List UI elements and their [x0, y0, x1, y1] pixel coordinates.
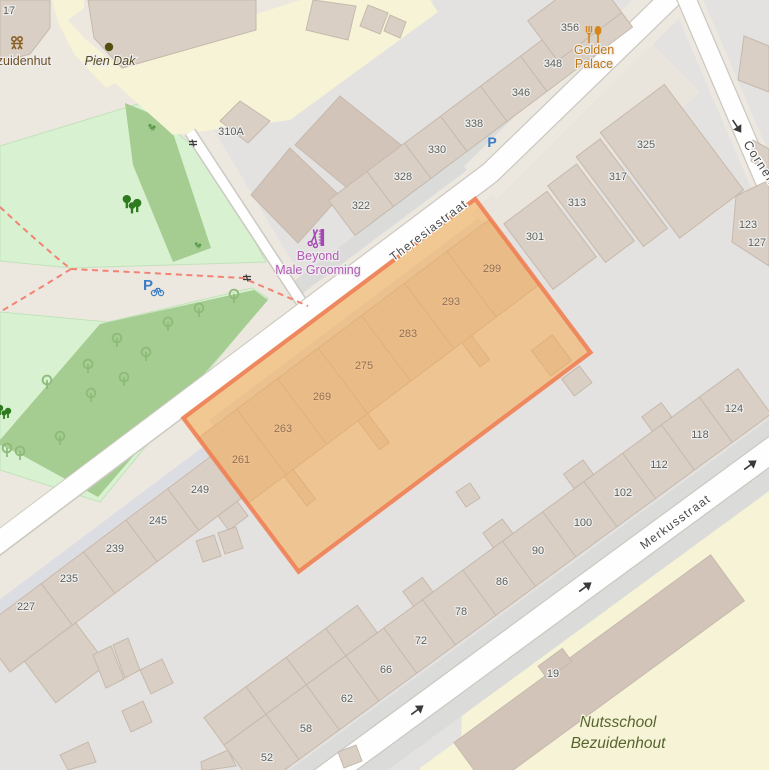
svg-text:118: 118	[691, 429, 709, 441]
svg-text:245: 245	[149, 515, 167, 527]
svg-text:19: 19	[547, 668, 559, 680]
svg-text:293: 293	[442, 296, 460, 308]
svg-text:310A: 310A	[218, 126, 244, 138]
svg-text:239: 239	[106, 543, 124, 555]
svg-text:Beyond: Beyond	[297, 249, 339, 263]
svg-text:72: 72	[415, 635, 427, 647]
svg-text:90: 90	[532, 545, 544, 557]
svg-text:328: 328	[394, 171, 412, 183]
svg-text:Male Grooming: Male Grooming	[275, 263, 360, 277]
svg-text:66: 66	[380, 664, 392, 676]
svg-text:102: 102	[614, 487, 632, 499]
svg-text:301: 301	[526, 231, 544, 243]
svg-text:86: 86	[496, 576, 508, 588]
svg-text:Bezuidenhut: Bezuidenhut	[0, 54, 52, 68]
svg-text:356: 356	[561, 22, 579, 34]
svg-text:249: 249	[191, 484, 209, 496]
svg-text:100: 100	[574, 517, 592, 529]
svg-text:317: 317	[609, 171, 627, 183]
svg-text:124: 124	[725, 403, 743, 415]
svg-text:313: 313	[568, 197, 586, 209]
svg-text:348: 348	[544, 58, 562, 70]
svg-text:261: 261	[232, 454, 250, 466]
svg-text:299: 299	[483, 263, 501, 275]
svg-text:Golden: Golden	[574, 43, 614, 57]
svg-text:58: 58	[300, 723, 312, 735]
svg-text:Nutsschool: Nutsschool	[580, 714, 657, 731]
svg-text:235: 235	[60, 573, 78, 585]
svg-text:123: 123	[739, 219, 757, 231]
svg-text:127: 127	[748, 237, 766, 249]
svg-text:112: 112	[650, 459, 668, 471]
svg-text:325: 325	[637, 139, 655, 151]
svg-text:338: 338	[465, 118, 483, 130]
svg-text:322: 322	[352, 200, 370, 212]
svg-text:17: 17	[3, 5, 15, 17]
svg-text:283: 283	[399, 328, 417, 340]
svg-text:227: 227	[17, 601, 35, 613]
svg-text:62: 62	[341, 693, 353, 705]
svg-text:346: 346	[512, 87, 530, 99]
svg-text:330: 330	[428, 144, 446, 156]
svg-text:Pien Dak: Pien Dak	[85, 54, 136, 68]
svg-text:Palace: Palace	[575, 57, 613, 71]
svg-text:Bezuidenhout: Bezuidenhout	[571, 735, 666, 752]
svg-text:275: 275	[355, 360, 373, 372]
svg-text:78: 78	[455, 606, 467, 618]
svg-text:52: 52	[261, 752, 273, 764]
svg-text:269: 269	[313, 391, 331, 403]
svg-text:263: 263	[274, 423, 292, 435]
svg-text:P: P	[487, 134, 496, 150]
